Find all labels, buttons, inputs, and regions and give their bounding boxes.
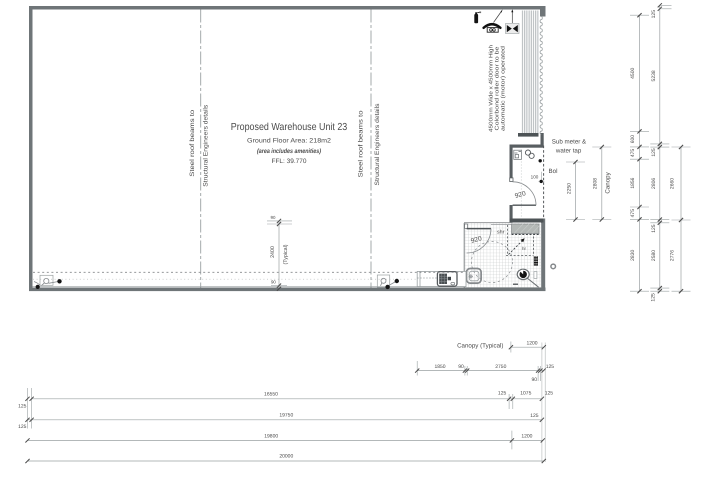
svg-text:1856: 1856 [630, 177, 636, 188]
svg-text:125: 125 [18, 404, 27, 410]
svg-text:90: 90 [271, 279, 276, 284]
svg-text:1200: 1200 [521, 433, 532, 439]
svg-text:1200: 1200 [526, 340, 537, 346]
svg-text:Structural Engineers details: Structural Engineers details [203, 105, 210, 187]
svg-text:2776: 2776 [669, 250, 675, 261]
svg-text:Canopy (Typical): Canopy (Typical) [457, 343, 503, 350]
svg-text:Steel roof beams to: Steel roof beams to [358, 110, 365, 178]
svg-text:125: 125 [18, 424, 27, 430]
svg-text:125: 125 [530, 413, 539, 419]
svg-text:100: 100 [531, 175, 539, 180]
svg-text:90: 90 [271, 215, 276, 220]
svg-text:hr: hr [522, 246, 527, 251]
svg-text:1075: 1075 [520, 391, 531, 397]
svg-text:Colorbond roller door to be: Colorbond roller door to be [495, 47, 501, 131]
svg-text:FFL: 39.770: FFL: 39.770 [272, 158, 307, 165]
svg-text:125: 125 [651, 293, 657, 302]
svg-text:5238: 5238 [651, 70, 657, 81]
svg-text:2400: 2400 [270, 246, 276, 258]
svg-text:Canopy: Canopy [604, 171, 611, 193]
svg-text:90: 90 [532, 377, 538, 383]
svg-text:2830: 2830 [630, 250, 636, 261]
svg-text:600: 600 [630, 135, 636, 144]
svg-text:(area includes amenities): (area includes amenities) [257, 148, 321, 155]
svg-text:Structural Engineers details: Structural Engineers details [374, 104, 381, 186]
svg-text:4500mm Wide x 4500mm High: 4500mm Wide x 4500mm High [488, 45, 494, 132]
svg-text:19750: 19750 [279, 413, 293, 419]
svg-text:2750: 2750 [495, 364, 506, 370]
svg-text:Bol: Bol [549, 168, 558, 175]
svg-text:475: 475 [630, 149, 636, 158]
svg-text:125: 125 [546, 364, 555, 370]
svg-text:Sub meter &: Sub meter & [552, 139, 587, 146]
svg-text:125: 125 [651, 224, 657, 233]
svg-text:Steel roof beams to: Steel roof beams to [189, 109, 196, 177]
svg-text:16550: 16550 [264, 392, 278, 398]
svg-text:90: 90 [458, 364, 464, 370]
svg-text:Ground Floor Area: 218m2: Ground Floor Area: 218m2 [247, 138, 331, 145]
svg-text:125: 125 [498, 391, 507, 397]
svg-text:125: 125 [651, 10, 657, 19]
svg-text:4500: 4500 [630, 68, 636, 79]
svg-text:1850: 1850 [434, 364, 445, 370]
svg-text:(Typical): (Typical) [283, 244, 289, 264]
svg-text:20000: 20000 [279, 454, 293, 460]
svg-text:water tap: water tap [555, 148, 582, 155]
svg-text:125: 125 [545, 391, 554, 397]
svg-text:2806: 2806 [651, 178, 657, 189]
svg-text:475: 475 [630, 209, 636, 218]
svg-text:Proposed Warehouse Unit 23: Proposed Warehouse Unit 23 [231, 122, 348, 133]
svg-text:2660: 2660 [669, 178, 675, 189]
svg-text:125: 125 [651, 148, 657, 157]
svg-text:2808: 2808 [593, 178, 599, 189]
svg-text:19800: 19800 [264, 434, 278, 440]
svg-text:2580: 2580 [651, 250, 657, 261]
svg-text:shr: shr [497, 229, 505, 235]
svg-text:automatic (motor) operated: automatic (motor) operated [501, 46, 507, 131]
svg-text:2250: 2250 [566, 183, 572, 194]
